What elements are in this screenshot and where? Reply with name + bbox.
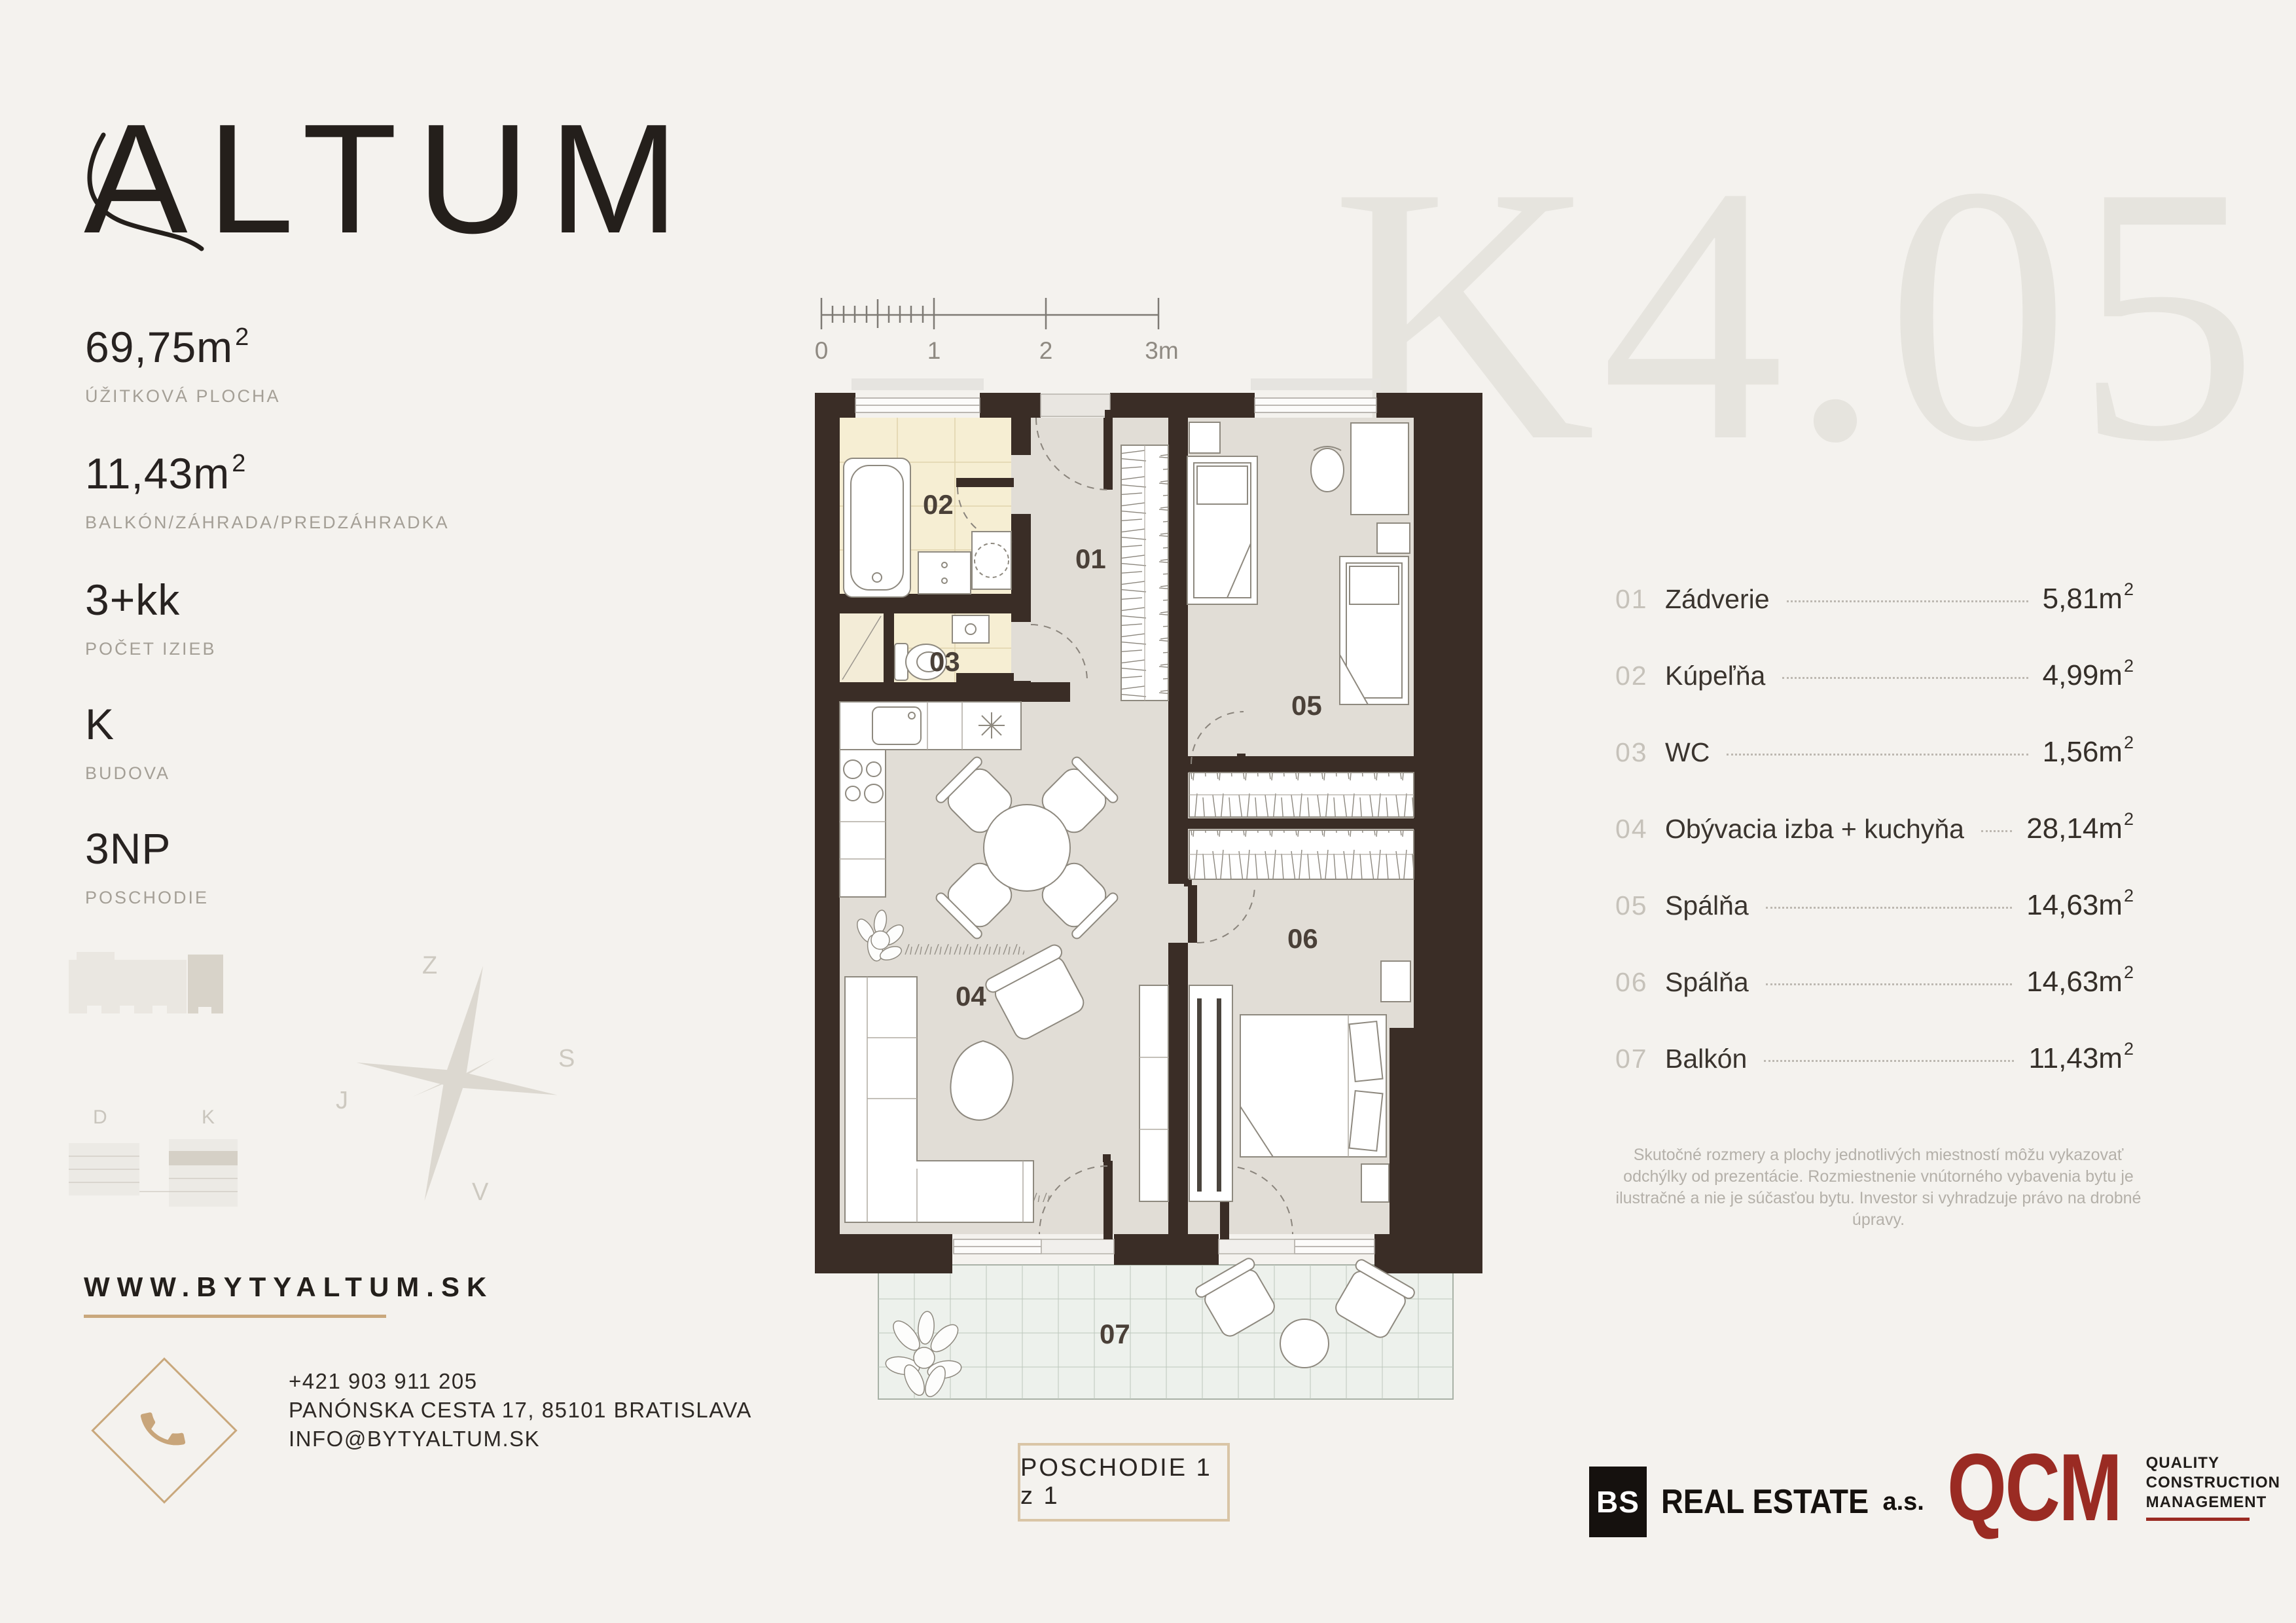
site-block-k-highlighted	[169, 1139, 238, 1207]
scale-tick-0: 0	[815, 337, 829, 364]
bs-logo-name: REAL ESTATE	[1661, 1482, 1869, 1522]
dotted-leader	[1764, 1060, 2014, 1062]
tv-sideboard	[1139, 985, 1168, 1201]
compass-label-east: V	[472, 1178, 488, 1207]
compass-star	[331, 948, 583, 1223]
scale-bar-ticks	[821, 298, 1158, 329]
compass-label-west: Z	[422, 952, 437, 980]
site-label-k: K	[202, 1106, 215, 1128]
contact-phone: +421 903 911 205	[289, 1367, 752, 1396]
qcm-underline	[2146, 1518, 2250, 1521]
stat-balcony-area: 11,43m2 BALKÓN/ZÁHRADA/PREDZÁHRADKA	[85, 448, 450, 533]
room-row-01: 01Zádverie 5,81m2	[1615, 579, 2134, 613]
dotted-leader	[1787, 600, 2028, 602]
qcm-text-block: QUALITY CONSTRUCTION MANAGEMENT	[2146, 1448, 2280, 1527]
double-bed	[1240, 1015, 1386, 1157]
scale-bar: 0 1 2 3m	[812, 290, 1178, 369]
stat-value: 3+kk	[85, 575, 217, 625]
floor-badge: POSCHODIE 1 z 1	[1018, 1443, 1230, 1522]
site-label-d: D	[93, 1106, 107, 1128]
logo-text: ALTUM	[84, 98, 698, 266]
label-room-06: 06	[1287, 923, 1318, 954]
stat-building: K BUDOVA	[85, 699, 170, 784]
dotted-leader	[1727, 754, 2028, 756]
brochure-page: K4.05 ALTUM 69,75m2 ÚŽITKOVÁ PLOCHA 11,4…	[0, 0, 2296, 1623]
contact-email: INFO@BYTYALTUM.SK	[289, 1425, 752, 1453]
altum-logo: ALTUM	[84, 98, 778, 272]
dotted-leader	[1766, 907, 2013, 909]
room-row-07: 07Balkón 11,43m2	[1615, 1039, 2134, 1073]
site-block-d	[69, 1143, 139, 1195]
website-link: WWW.BYTYALTUM.SK	[84, 1271, 493, 1303]
stat-value: 69,75m2	[85, 322, 281, 372]
stat-value: 3NP	[85, 824, 209, 873]
stat-label: POČET IZIEB	[85, 639, 217, 659]
qcm-abbr: QCM	[1947, 1448, 2121, 1527]
accent-underline	[84, 1315, 386, 1318]
room-row-05: 05Spálňa 14,63m2	[1615, 886, 2134, 920]
nightstand	[1381, 961, 1410, 1002]
stat-label: ÚŽITKOVÁ PLOCHA	[85, 386, 281, 407]
nightstand	[1361, 1164, 1389, 1202]
nightstand	[1377, 523, 1410, 553]
wardrobe-bedroom-06	[1189, 830, 1414, 879]
site-plan: D K	[65, 1105, 262, 1223]
scale-tick-3: 3m	[1145, 337, 1178, 364]
bs-real-estate-logo: BS REAL ESTATE a.s.	[1589, 1467, 1924, 1537]
label-room-02: 02	[923, 489, 954, 520]
phone-badge	[85, 1350, 240, 1507]
disclaimer-text: Skutočné rozmery a plochy jednotlivých m…	[1600, 1144, 2157, 1231]
bathtub	[844, 458, 910, 597]
compass-label-north: S	[558, 1045, 575, 1073]
label-room-04: 04	[956, 981, 986, 1012]
washing-machine	[972, 532, 1011, 589]
contact-block: +421 903 911 205 PANÓNSKA CESTA 17, 8510…	[289, 1367, 752, 1453]
scale-tick-2: 2	[1039, 337, 1053, 364]
stat-value: K	[85, 699, 170, 749]
bathroom-sink	[918, 552, 971, 594]
single-bed-right	[1340, 556, 1408, 704]
exterior-sills	[852, 378, 1380, 390]
desk	[1351, 423, 1408, 515]
hallway-wardrobe	[1121, 445, 1168, 701]
rug-edge	[903, 944, 1024, 956]
stat-value: 11,43m2	[85, 448, 450, 498]
contact-address: PANÓNSKA CESTA 17, 85101 BRATISLAVA	[289, 1396, 752, 1425]
label-room-07: 07	[1100, 1319, 1130, 1349]
qcm-logo: QCM QUALITY CONSTRUCTION MANAGEMENT	[1947, 1448, 2280, 1527]
dotted-leader	[1782, 677, 2028, 679]
stat-label: POSCHODIE	[85, 888, 209, 908]
room-row-06: 06Spálňa 14,63m2	[1615, 962, 2134, 996]
stat-floor: 3NP POSCHODIE	[85, 824, 209, 908]
wc-sink	[952, 615, 989, 643]
stat-label: BUDOVA	[85, 763, 170, 784]
phone-icon	[133, 1399, 194, 1460]
room-row-03: 03WC 1,56m2	[1615, 733, 2134, 767]
bs-logo-box: BS	[1589, 1467, 1647, 1537]
compass-label-south: J	[336, 1087, 348, 1115]
bs-logo-suffix: a.s.	[1882, 1488, 1924, 1516]
stat-label: BALKÓN/ZÁHRADA/PREDZÁHRADKA	[85, 513, 450, 533]
compass-rose: Z S J V	[331, 948, 605, 1223]
single-bed-left	[1187, 456, 1257, 604]
label-room-01: 01	[1075, 543, 1106, 574]
altum-logo-svg: ALTUM	[84, 98, 778, 268]
stat-rooms: 3+kk POČET IZIEB	[85, 575, 217, 659]
label-room-05: 05	[1291, 690, 1322, 721]
floor-plan: 02 03 01 05 04 06 07	[815, 376, 1482, 1404]
wardrobe-bedroom-05	[1189, 773, 1414, 817]
building-silhouette	[69, 948, 226, 1025]
dotted-leader	[1766, 983, 2013, 985]
scale-tick-1: 1	[927, 337, 941, 364]
balcony-table	[1280, 1319, 1329, 1368]
room-row-04: 04Obývacia izba + kuchyňa 28,14m2	[1615, 809, 2134, 843]
stat-usable-area: 69,75m2 ÚŽITKOVÁ PLOCHA	[85, 322, 281, 407]
dotted-leader	[1981, 830, 2012, 832]
label-room-03: 03	[929, 646, 960, 677]
room-row-02: 02Kúpeľňa 4,99m2	[1615, 656, 2134, 690]
wardrobe-cabinet	[1189, 985, 1232, 1201]
